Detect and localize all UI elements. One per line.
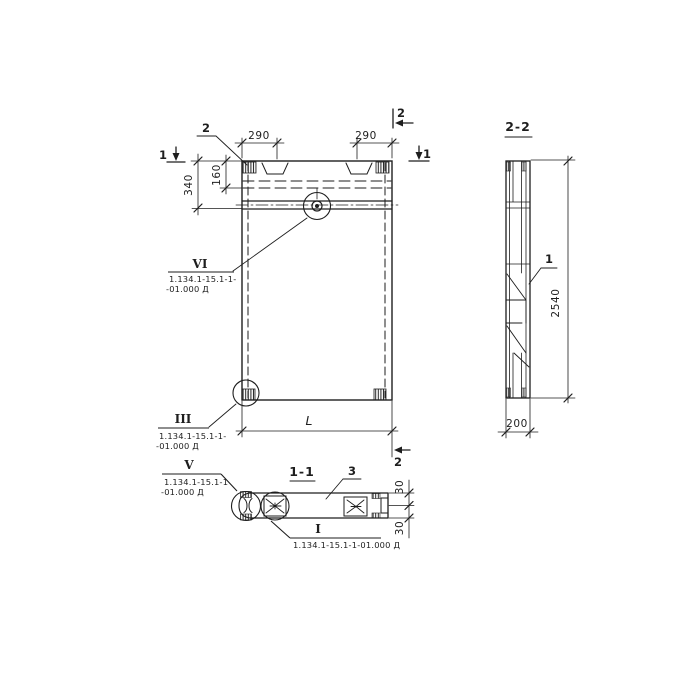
dim-2540-label: 2540 (550, 288, 562, 317)
dim-30-bottom-label: 30 (394, 521, 406, 536)
leader-callout3 (326, 479, 361, 499)
section-1-1-title: 1-1 (289, 464, 315, 479)
lifting-hole-inner (315, 204, 319, 208)
detail-label-iii: III 1.134.1-15.1-1- -01.000 Д (156, 412, 226, 451)
leader-iii (209, 404, 236, 427)
anchor-block-top-right (376, 162, 389, 173)
detail-i-numeral: I (315, 522, 321, 536)
detail-i-bar (271, 521, 381, 538)
dim-160-label: 160 (211, 164, 223, 186)
detail-vi-numeral: VI (192, 257, 208, 271)
mark2-top-arrow (395, 120, 403, 127)
mark-1-right-label: 1 (423, 147, 431, 161)
anchor-block-bottom-right (374, 389, 386, 400)
bar-end-hatch-bottom (241, 514, 252, 520)
insert-left-glyph (266, 499, 284, 513)
section22-inner-lines (506, 161, 530, 398)
panel-dashed-edges (248, 163, 385, 398)
mark-2-bottom-label: 2 (394, 455, 402, 469)
detail-vi-code1: 1.134.1-15.1-1- (169, 274, 236, 284)
dim-L-lines (236, 401, 398, 457)
hidden-lines (243, 181, 391, 188)
section22-hatch-br (522, 388, 526, 397)
mark-1-left-label: 1 (159, 148, 167, 162)
insert-middle-glyph (347, 500, 364, 513)
detail-iii-code2: -01.000 Д (156, 441, 199, 451)
dim-290-right-label: 290 (355, 130, 377, 142)
blueprint-page: 2 290 290 1 1 2 2 340 160 L VI 1.134.1-1… (0, 0, 700, 700)
callout-3-label: 3 (348, 464, 356, 478)
detail-v-code1: 1.134.1-15.1-1 (164, 477, 228, 487)
callout-1-label: 1 (545, 252, 553, 266)
section22-hatch-bl (507, 388, 511, 397)
bar-left-waist (244, 499, 252, 513)
detail-iii-code1: 1.134.1-15.1-1- (159, 431, 226, 441)
mark1-left-arrow (173, 153, 180, 161)
recess-right (346, 163, 372, 174)
bar-right-hatch-bottom (372, 513, 380, 518)
detail-label-v: V 1.134.1-15.1-1 -01.000 Д (161, 458, 237, 497)
section22-hatch-tl (507, 162, 511, 171)
detail-v-code2: -01.000 Д (161, 487, 204, 497)
leader-callout1 (529, 268, 557, 284)
detail-i-code1: 1.134.1-15.1-1-01.000 Д (293, 540, 400, 550)
dim-340-label: 340 (183, 174, 195, 196)
callout-2-label: 2 (202, 121, 210, 135)
mark-2-top-label: 2 (397, 106, 405, 120)
dim-2540-lines (531, 156, 575, 403)
detail-label-i: I 1.134.1-15.1-1-01.000 Д (271, 521, 400, 550)
anchor-block-bottom-left (242, 389, 255, 400)
bar-right-channel (381, 498, 388, 513)
section-1-1-view (232, 479, 415, 538)
section22-hatch-tr (522, 162, 526, 171)
detail-label-vi: VI 1.134.1-15.1-1- -01.000 Д (166, 257, 236, 294)
dim-L-label: L (306, 413, 313, 428)
recess-left (262, 163, 288, 174)
detail-v-numeral: V (183, 458, 194, 472)
detail-vi-code2: -01.000 Д (166, 284, 209, 294)
dim-30-top-label: 30 (394, 480, 406, 495)
section-2-2-title: 2-2 (505, 119, 531, 134)
detail-iii-numeral: III (175, 412, 192, 426)
mark2-bottom-arrow (394, 447, 402, 454)
blueprint-canvas: 2 290 290 1 1 2 2 340 160 L VI 1.134.1-1… (0, 0, 700, 700)
bar-right-hatch-top (372, 494, 380, 499)
leader-vi (233, 218, 307, 271)
mark1-right-arrow (416, 152, 423, 160)
dim-ticks (194, 139, 396, 435)
dim-200-label: 200 (506, 418, 528, 430)
section-2-2-view (498, 137, 575, 438)
dim-290-left-label: 290 (248, 130, 270, 142)
